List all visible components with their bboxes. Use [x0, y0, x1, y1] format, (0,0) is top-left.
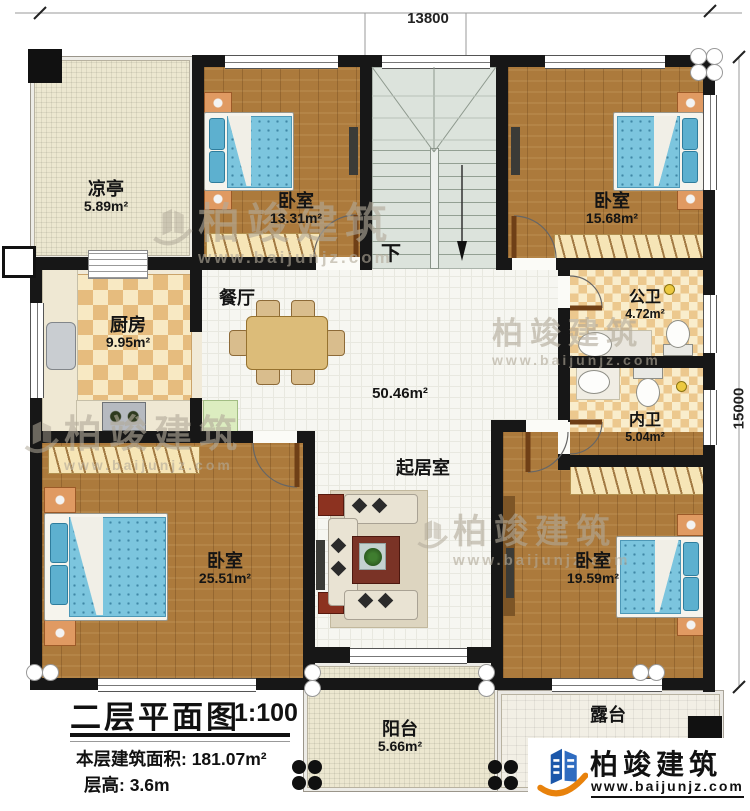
floor-height-text: 层高: 3.6m [84, 772, 170, 797]
room-label-bedroom-top-left: 卧室 13.31m² [236, 191, 356, 227]
railing-post [690, 64, 707, 81]
window [545, 55, 665, 69]
railing-post [26, 664, 43, 681]
brand-name: 柏竣建筑 [590, 743, 722, 783]
bath-light [676, 381, 687, 392]
balcony-post [504, 760, 518, 774]
balcony-post [292, 760, 306, 774]
room-label-pavilion: 凉亭 5.89m² [46, 179, 166, 215]
bed-sheet [654, 116, 678, 186]
railing-post [690, 48, 707, 65]
room-label-kitchen: 厨房 9.95m² [68, 315, 188, 351]
railing-post [632, 664, 649, 681]
balcony-post [308, 776, 322, 790]
bed-pillow [50, 565, 68, 605]
bed-pillow [683, 577, 699, 611]
title-underline-thin [70, 741, 290, 742]
door-opening [558, 276, 570, 308]
window [225, 55, 338, 69]
balcony-post [488, 776, 502, 790]
railing-post [706, 48, 723, 65]
nightstand [204, 92, 232, 114]
window [703, 390, 717, 445]
floor-area-text: 本层建筑面积: 181.07m² [76, 746, 267, 771]
plant [364, 548, 382, 566]
door-opening [253, 431, 297, 443]
room-label-bedroom-bottom-right: 卧室 19.59m² [533, 551, 653, 587]
public-bath-sink [578, 332, 612, 357]
railing-post [304, 680, 321, 697]
wall [558, 455, 715, 467]
pavilion-steps [88, 250, 148, 279]
window [30, 303, 44, 398]
brand-logo: 柏竣建筑 www.baijunjz.com [528, 738, 750, 811]
door-opening [316, 257, 360, 270]
nightstand [677, 514, 705, 536]
bay-window [2, 246, 36, 278]
tv-panel [316, 540, 325, 590]
door-opening [558, 422, 570, 454]
dimension-height: 15000 [731, 374, 748, 444]
stair-treads-right [437, 150, 496, 267]
window [552, 678, 662, 692]
railing-post [42, 664, 59, 681]
window [382, 55, 490, 69]
window [98, 678, 256, 692]
dining-table [246, 316, 328, 370]
room-label-dining: 餐厅 [192, 288, 282, 308]
bed-pillow [209, 151, 225, 183]
wardrobe [48, 446, 200, 474]
door-opening [512, 258, 556, 270]
railing-post [648, 664, 665, 681]
balcony-post [488, 760, 502, 774]
title-underline [70, 733, 290, 737]
sofa [344, 590, 418, 620]
room-label-bedroom-top-right: 卧室 15.68m² [552, 191, 672, 227]
balcony-slider-window [350, 648, 467, 664]
bed-pillow [683, 542, 699, 576]
nightstand [677, 188, 704, 210]
wall [467, 647, 503, 663]
nightstand [44, 620, 76, 646]
tv-panel [506, 548, 514, 598]
floor-plan-canvas: 柏竣建筑 www.baijunjz.com 柏竣建筑 www.baijunjz.… [0, 0, 750, 811]
balcony-post [308, 760, 322, 774]
room-label-living: 起居室 [375, 458, 471, 478]
room-label-balcony: 阳台 5.66m² [340, 719, 460, 755]
tv-stand [318, 494, 344, 516]
stair-stringer [430, 148, 439, 269]
wall [360, 55, 372, 267]
bed-sheet [655, 540, 679, 612]
balcony-post [504, 776, 518, 790]
private-bath-sink [578, 370, 610, 394]
brand-logo-icon [536, 744, 588, 802]
brand-website: www.baijunjz.com [591, 778, 744, 798]
column [28, 49, 62, 83]
bed-pillow [682, 118, 698, 150]
plan-scale: 1:100 [234, 699, 298, 728]
stove [102, 402, 146, 431]
room-label-public-bath: 公卫 4.72m² [585, 289, 705, 321]
public-bath-toilet [666, 320, 690, 348]
wardrobe [570, 463, 704, 495]
dimension-width: 13800 [396, 10, 460, 27]
railing-post [304, 664, 321, 681]
dining-chair [325, 330, 345, 356]
room-label-living-area: 50.46m² [352, 386, 448, 403]
room-label-private-bath: 内卫 5.04m² [585, 412, 705, 444]
bed-pillow [209, 118, 225, 150]
railing-post [706, 64, 723, 81]
bed-pillow [682, 151, 698, 183]
pavilion-floor [30, 56, 194, 260]
room-label-bedroom-bottom-left: 卧室 25.51m² [165, 551, 285, 587]
wall [192, 55, 204, 270]
wall [558, 356, 715, 368]
tv-panel [511, 127, 520, 175]
nightstand [204, 188, 232, 210]
nightstand [44, 487, 76, 513]
room-label-terrace: 露台 [568, 705, 648, 725]
stairs-down-label: 下 [376, 243, 406, 265]
window [703, 95, 717, 190]
bed-pillow [50, 523, 68, 563]
private-bath-toilet [636, 378, 660, 407]
window [703, 295, 717, 353]
railing-post [478, 664, 495, 681]
tv-panel [349, 127, 358, 175]
bed-sheet [69, 517, 103, 615]
wall [496, 55, 508, 267]
railing-post [478, 680, 495, 697]
plan-title: 二层平面图 [70, 692, 240, 737]
bed-sheet [227, 116, 251, 186]
nightstand [677, 92, 704, 114]
balcony-post [292, 776, 306, 790]
